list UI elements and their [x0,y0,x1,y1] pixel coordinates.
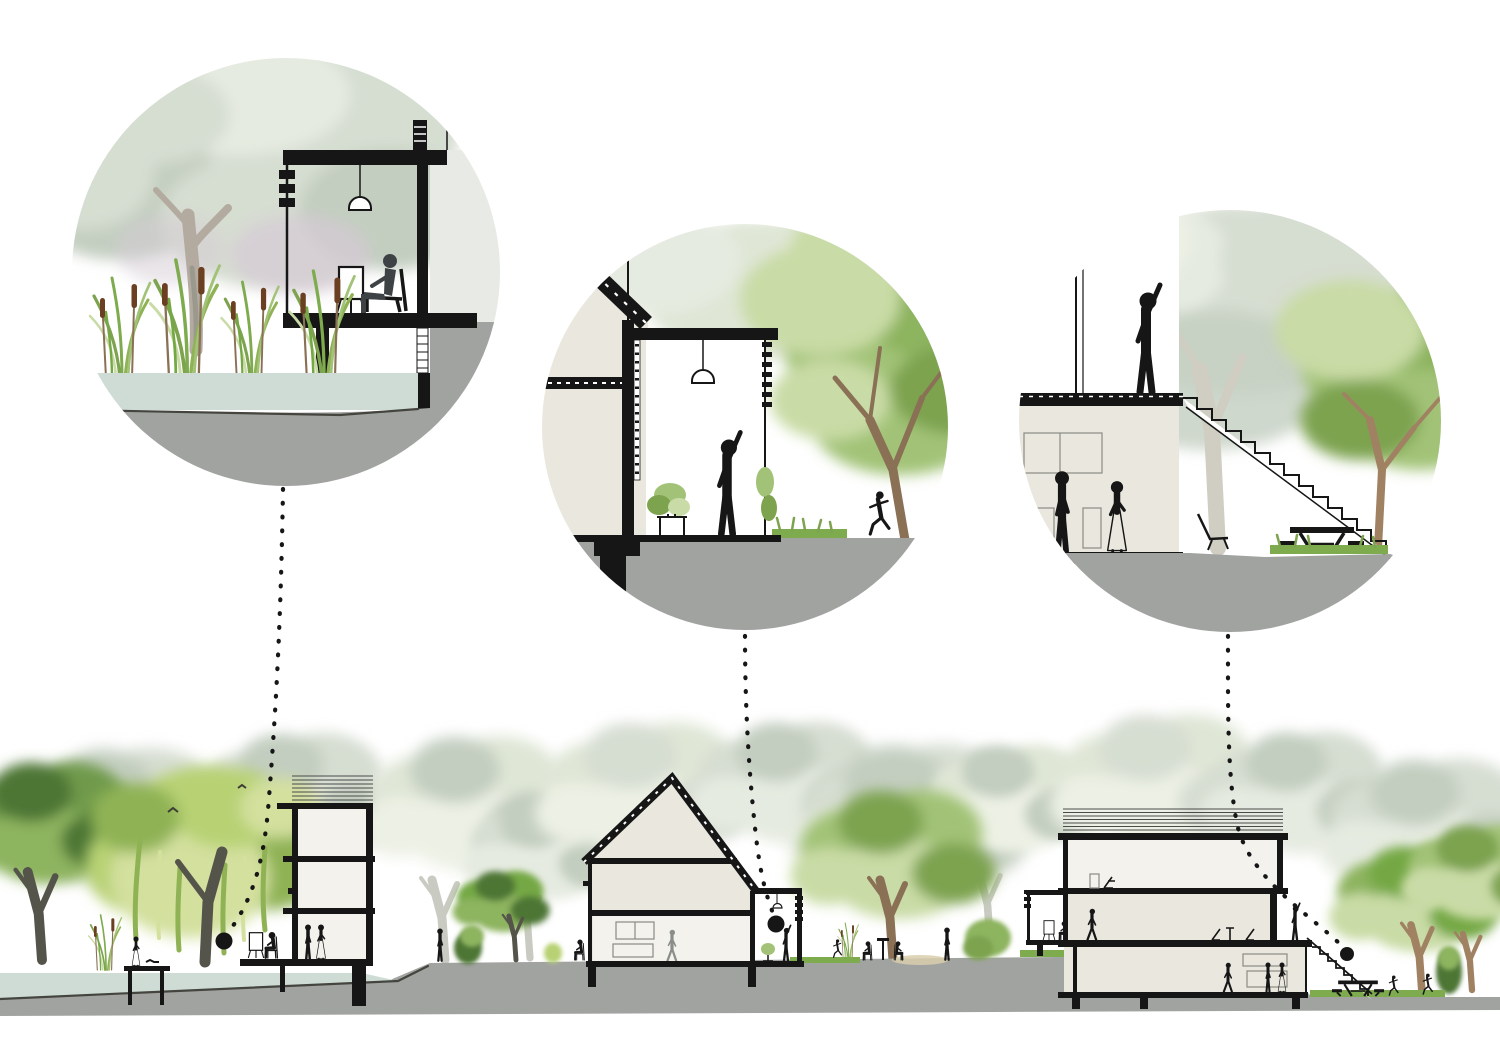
reeds-icon [89,915,122,970]
child-running-icon [834,939,842,957]
ceiling-slab [634,328,778,340]
foundation-pier [352,966,366,1006]
ground-slab [536,535,781,542]
detail-marker-dot [1340,947,1354,961]
floor-slab [589,910,754,916]
window-mullion [279,198,295,207]
ceiling-slab [283,150,447,165]
balcony-detail [288,888,296,894]
column [1063,840,1068,888]
detail-circle-annex [530,190,1030,633]
ground [72,406,510,492]
ground [1019,553,1445,635]
pendant-lamp-icon [692,370,714,383]
floor-slab [1058,888,1288,894]
lower-interior [1019,406,1179,552]
grass-strip [772,529,847,538]
ground-slab [586,961,804,967]
architectural-section-page [0,0,1500,1060]
detail-marker-dot [216,933,233,950]
roof-slab [1019,393,1183,406]
roof-slab [277,803,373,809]
wall [588,858,592,961]
person-icon [132,936,140,966]
person-reaching-icon [783,925,790,960]
wall [1073,947,1077,992]
bush-icon [1438,946,1460,970]
foundation-pier [748,967,756,987]
interior [1064,840,1282,888]
foundation-pier [1292,998,1300,1009]
bush-icon [460,925,484,947]
attic-slab [591,858,737,864]
pile [280,966,285,992]
person-icon [944,927,950,959]
roof-stripes [1063,809,1283,830]
foundation-pier [1072,998,1080,1009]
easel-icon [248,933,263,958]
floor-slab [283,856,375,862]
window-mullion [279,170,295,179]
bush-icon [544,943,562,963]
detail-circle-waterside [15,35,510,492]
vine-plant [756,467,774,497]
person-waving-icon [1292,903,1299,939]
terrace-slab [1058,940,1312,947]
bush-icon [963,936,993,960]
detail-circle-terrace [1010,185,1500,635]
detail-marker-dot [768,916,785,933]
ground-slab [1058,992,1308,998]
foundation-pier [1140,998,1148,1009]
parapet [413,120,427,150]
annex-roof [755,888,802,894]
window-mullion [279,184,295,193]
sand-path [892,955,948,965]
column [1063,894,1068,940]
bird-icon [146,960,159,962]
facade [430,150,510,325]
water [72,373,418,410]
column [1277,840,1283,888]
wall [292,809,298,959]
outside-ground [430,322,510,492]
building-detail [1015,205,1183,614]
foundation [600,556,626,592]
vine-plant [761,495,777,521]
foundation-pier [588,967,596,987]
person-sitting-icon [266,932,278,958]
roof-slab [1058,833,1288,840]
pendant-lamp-icon [349,197,371,210]
person-sitting-icon [575,940,584,960]
grass-strip [1270,545,1388,554]
section-diagram [0,0,1500,1060]
gutter [583,881,590,886]
terrace-slab [240,959,373,966]
floor-slab [283,908,375,914]
wall [417,165,428,313]
foundation [594,542,640,556]
wall [750,891,755,961]
wall [366,809,373,959]
wall [1270,894,1277,940]
easel-icon [1043,921,1055,940]
roof-stripes [292,776,373,800]
pendant-lamp-icon [773,904,782,908]
wall [622,320,634,538]
plant-icon [761,943,775,955]
